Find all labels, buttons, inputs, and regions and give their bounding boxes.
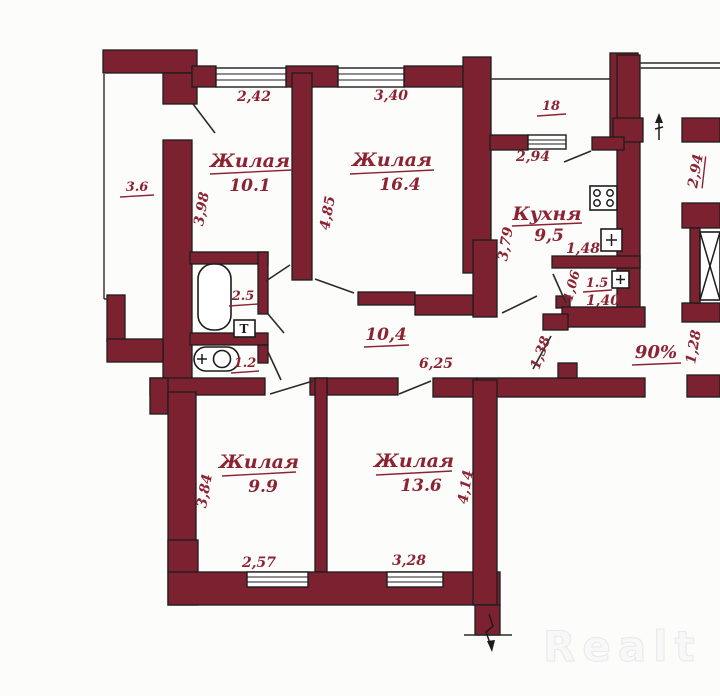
wall-segment (315, 378, 327, 572)
dimension-label: 3,79 (495, 226, 517, 263)
wall-segment (682, 303, 720, 322)
wall-segment (682, 203, 720, 228)
bathroom-area: 2.5 (231, 289, 255, 304)
dimension-label: 1,48 (566, 241, 600, 257)
door-swing (193, 104, 215, 133)
electrical-panel-icon (612, 271, 629, 288)
room-area: 10.1 (229, 176, 270, 196)
wall-segment (103, 50, 197, 73)
dimension-label: 3,84 (194, 473, 216, 509)
room-name: Жилая (350, 149, 432, 171)
balcony-left-area: 3.6 (126, 180, 149, 195)
wall-segment (682, 118, 720, 142)
wall-segment (592, 137, 624, 150)
towel-rail-icon: T (234, 320, 255, 337)
dimension-label: 3,28 (392, 553, 426, 569)
dimension-label: 3,98 (191, 191, 213, 228)
toilet-icon (194, 347, 239, 371)
wc-area: 1.2 (234, 356, 257, 371)
wall-segment (192, 66, 216, 87)
dimension-label: 2,42 (236, 89, 271, 105)
door-swing (268, 314, 284, 333)
wall-segment (558, 363, 577, 378)
wall-segment (258, 252, 268, 314)
floor-plan-drawing: T (0, 0, 720, 696)
ownership-share: 90% (635, 342, 677, 363)
wall-segment (404, 66, 466, 87)
electrical-panel-icon (601, 229, 622, 251)
svg-text:T: T (240, 322, 249, 336)
wall-segment (562, 307, 645, 327)
stove-icon (590, 186, 617, 210)
wall-segment (477, 378, 645, 397)
door-swing (564, 151, 591, 162)
door-swing (399, 381, 431, 394)
bathtub-icon (198, 264, 231, 330)
wall-segment (543, 314, 568, 330)
wall-segment (258, 345, 268, 363)
wall-segment (327, 378, 398, 395)
dimension-label: 4,85 (317, 195, 339, 231)
room-area: 16.4 (379, 175, 420, 195)
room-area: 13.6 (400, 476, 442, 496)
balcony-top-area: 18 (542, 99, 560, 114)
wall-segment (107, 339, 163, 362)
door-swing (502, 296, 537, 313)
dimension-label: 2,57 (241, 555, 276, 571)
wall-segment (292, 73, 312, 280)
wall-segment (433, 378, 477, 397)
window (387, 572, 443, 587)
storage-area: 1.5 (586, 276, 609, 291)
wall-segment (358, 292, 415, 305)
wall-segment (150, 378, 168, 414)
wall-segment (190, 252, 268, 264)
door-swing (270, 381, 313, 394)
floor-plan: T (0, 0, 720, 696)
window (528, 135, 566, 149)
door-swing (315, 279, 354, 293)
door-swing (266, 265, 290, 281)
dimension-label: 1,40 (586, 293, 620, 309)
wall-segment (687, 375, 720, 397)
dimension-label: 2,94 (515, 149, 550, 165)
wall-segment (552, 256, 640, 268)
window (338, 68, 404, 87)
wall-segment (690, 228, 700, 303)
room-name: Жилая (208, 150, 290, 172)
wall-segment (168, 572, 500, 605)
room-area: 9,5 (534, 226, 564, 246)
wall-segment (473, 380, 497, 605)
wall-segment (473, 240, 497, 317)
door-swing (268, 352, 281, 380)
room-name: Кухня (512, 203, 582, 225)
wall-segment (415, 295, 473, 315)
dimension-label: 1,28 (683, 329, 705, 366)
wall-segment (190, 333, 268, 345)
wall-segment (107, 295, 125, 341)
dimension-label: 3,40 (374, 88, 408, 104)
window (247, 572, 308, 587)
hall-area: 10,4 (365, 325, 406, 345)
wall-segment (163, 140, 192, 380)
dimension-label: 1,06 (561, 269, 584, 303)
window (216, 68, 286, 87)
dimension-label: 1,38 (528, 334, 555, 372)
wall-segment (490, 135, 528, 150)
stairs-arrow-icon (655, 113, 663, 140)
realt-watermark: Realt (543, 622, 702, 671)
dimension-label: 6,25 (419, 356, 453, 372)
room-name: Жилая (372, 450, 454, 472)
elevator-shaft-icon (700, 232, 720, 300)
room-area: 9.9 (248, 477, 278, 497)
room-name: Жилая (217, 451, 299, 473)
walls (103, 50, 720, 635)
